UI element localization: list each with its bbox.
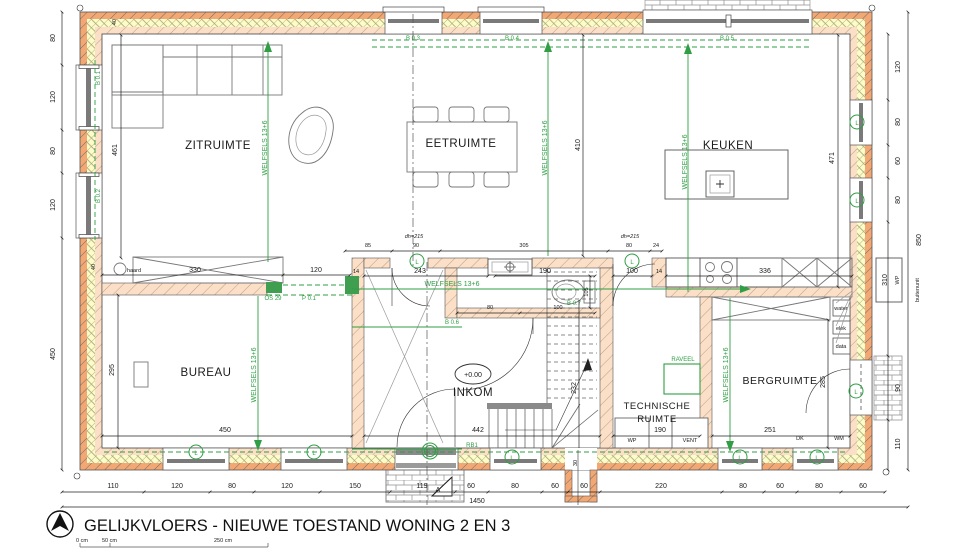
north-arrow [47,511,73,537]
svg-text:14: 14 [656,269,662,275]
meter-niche [565,448,597,502]
utility-boxes: water elek data [833,291,852,354]
welfsels-eetruimte: WELFSELS 13+6 [542,120,549,175]
svg-text:90: 90 [413,243,419,249]
svg-text:150: 150 [349,483,361,490]
svg-text:232: 232 [571,382,578,394]
room-zitruimte: ZITRUIMTE [185,140,251,152]
floor-plan-page: WP VENT water elek data 310 WP [0,0,960,548]
welfsels-zitruimte: WELFSELS 13+6 [262,120,269,175]
stair-handrail [487,403,552,409]
svg-text:100: 100 [626,268,638,275]
buitenunit-box: 310 WP [876,258,902,302]
svg-text:110: 110 [107,483,118,490]
svg-text:80: 80 [228,483,236,490]
drawing-title: GELIJKVLOERS - NIEUWE TOESTAND WONING 2 … [84,517,510,535]
svg-text:105: 105 [584,287,590,296]
wp-label: WP [628,438,637,444]
window-b05 [643,10,812,34]
svg-text:80: 80 [626,243,632,249]
svg-text:119: 119 [416,483,427,490]
svg-text:120: 120 [281,483,293,490]
svg-text:250 cm: 250 cm [214,538,232,544]
code-raveel: RAVEEL [671,357,695,363]
os29-marker [266,282,282,293]
svg-text:336: 336 [759,268,771,275]
svg-text:14: 14 [353,269,359,275]
room-bergruimte: BERGRUIMTE [742,375,817,387]
corner-marker [869,5,875,11]
svg-text:80: 80 [50,147,57,155]
svg-text:295: 295 [109,364,116,376]
welfsels-inkom: WELFSELS 13+6 [424,281,479,288]
room-inkom: INKOM [453,387,493,399]
level-marker: +0.00 [455,364,491,384]
svg-text:80: 80 [895,196,902,204]
code-b04: B 0.4 [505,36,520,42]
svg-text:+0.00: +0.00 [464,372,482,379]
svg-text:120: 120 [895,61,902,73]
svg-text:410: 410 [575,139,582,151]
svg-text:60: 60 [776,483,784,490]
vent-window [488,259,532,275]
svg-text:120: 120 [310,267,322,274]
buitenunit-label: buitenunit [915,278,921,302]
section-a-label: A [436,487,441,494]
welfsels-bureau: WELFSELS 13+6 [251,347,258,402]
wm-label: WM [834,436,844,442]
window-right-2 [850,178,872,222]
water-label: water [833,306,848,312]
welfsels-keuken: WELFSELS 13+6 [682,134,689,189]
dk-label: DK [796,436,804,442]
floor-plan-drawing: WP VENT water elek data 310 WP [0,0,960,548]
svg-text:50 cm: 50 cm [102,538,117,544]
code-b02: B 0.2 [96,188,102,203]
welfsels-bergruimte: WELFSELS 13+6 [723,347,730,402]
room-eetruimte: EETRUIMTE [426,138,497,150]
data-label: data [836,344,848,350]
svg-text:190: 190 [539,268,551,275]
svg-text:80: 80 [815,483,823,490]
room-technische-1: TECHNISCHE [624,401,691,412]
svg-text:251: 251 [764,427,776,434]
svg-text:85: 85 [365,243,371,249]
svg-text:450: 450 [50,348,57,360]
svg-text:220: 220 [655,483,667,490]
svg-text:330: 330 [189,267,201,274]
svg-text:442: 442 [472,427,484,434]
svg-text:40: 40 [91,264,97,270]
vent-unit-box: VENT [672,418,708,448]
svg-text:305: 305 [519,243,528,249]
svg-text:60: 60 [467,483,475,490]
buitenunit-wp: WP [895,275,901,284]
svg-text:120: 120 [171,483,183,490]
svg-text:60: 60 [580,483,588,490]
svg-text:80: 80 [50,34,57,42]
room-bureau: BUREAU [181,367,232,379]
code-os29: OS 29 [264,296,282,302]
window-b03 [383,7,444,34]
svg-text:461: 461 [112,144,119,156]
svg-text:60: 60 [895,157,902,165]
title-block: GELIJKVLOERS - NIEUWE TOESTAND WONING 2 … [47,511,510,547]
svg-text:dh=215: dh=215 [621,234,640,240]
code-rb1: RB1 [466,443,478,449]
code-b07: B 0.7 [567,301,582,307]
corner-marker [77,5,83,11]
svg-text:80: 80 [739,483,747,490]
svg-text:190: 190 [654,427,666,434]
svg-text:0 cm: 0 cm [76,538,88,544]
window-b02 [76,173,102,238]
corner-marker [74,473,80,479]
code-p01: P 0.1 [302,296,317,302]
svg-text:285: 285 [820,376,827,388]
code-b05: B 0.5 [720,36,735,42]
terrace-paving [645,0,810,10]
svg-text:90: 90 [895,384,902,392]
svg-text:80: 80 [895,118,902,126]
svg-text:243: 243 [414,268,426,275]
vent-label: VENT [683,438,698,444]
svg-text:850: 850 [916,234,923,246]
code-b01: B 0.1 [96,70,102,85]
room-keuken: KEUKEN [703,140,753,152]
scale-bar: 0 cm 50 cm 250 cm [76,538,268,547]
svg-text:dh=215: dh=215 [405,234,424,240]
svg-text:120: 120 [50,91,57,103]
svg-text:24: 24 [653,243,659,249]
wall-marker [345,276,359,294]
svg-text:80: 80 [487,305,493,311]
total-dim: 1450 [469,498,485,505]
svg-text:60: 60 [551,483,559,490]
svg-text:120: 120 [50,199,57,211]
svg-text:40: 40 [112,19,118,25]
svg-text:80: 80 [511,483,519,490]
window-b04 [478,7,544,34]
svg-text:30: 30 [573,460,579,466]
svg-text:471: 471 [829,152,836,164]
svg-text:60: 60 [859,483,867,490]
window-right-1 [850,100,872,145]
room-technische-2: RUIMTE [637,414,676,425]
haard-label: haard [127,268,141,274]
elek-label: elek [836,326,846,332]
code-b06: B 0.6 [445,320,460,326]
svg-text:100: 100 [553,305,562,311]
svg-text:110: 110 [895,438,902,449]
svg-text:450: 450 [219,427,231,434]
